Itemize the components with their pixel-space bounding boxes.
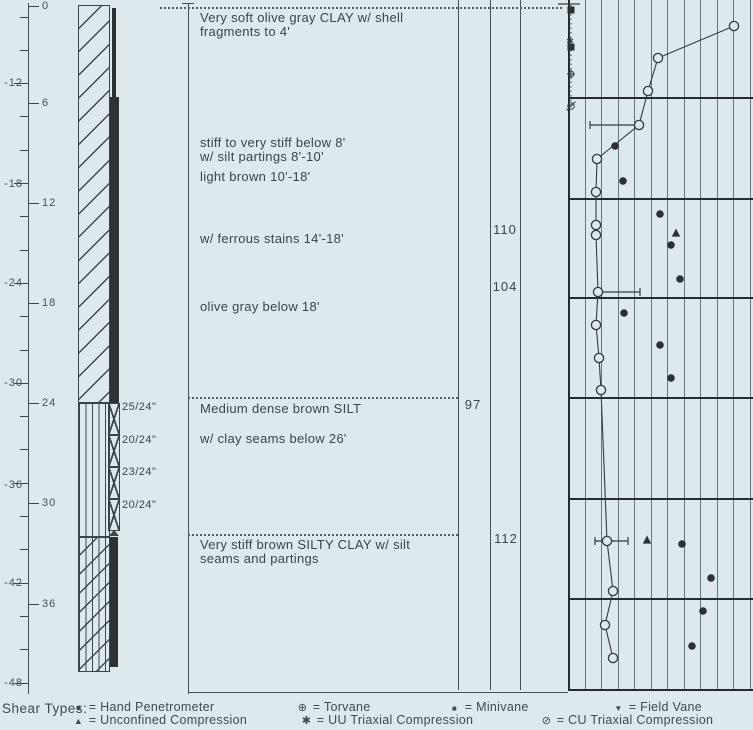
cu-symbol-icon: ⊘ [540,714,553,727]
hand-penetrometer-point [688,642,696,650]
strength-chart-plot: ✱ [0,0,753,730]
legend-item: ⊘ = CU Triaxial Compression [540,713,713,727]
open-circle-point [591,230,600,239]
open-circle-point [591,320,600,329]
open-circle-point [643,86,652,95]
open-circle-point [634,120,643,129]
profile-line [596,26,734,658]
open-circle-point [653,53,662,62]
unconfined-point [672,229,680,237]
legend-item: ▲ = Unconfined Compression [72,713,247,727]
open-circle-point [591,220,600,229]
open-circle-point [592,154,601,163]
filled-square-icon: ■ [448,704,461,713]
hand-penetrometer-point [656,210,664,218]
open-circle-point [729,21,738,30]
up-triangle-icon: ▲ [72,716,85,726]
hand-penetrometer-point [656,341,664,349]
hand-penetrometer-point [676,275,684,283]
legend-item: ▼ = Field Vane [612,700,702,714]
open-circle-point [591,187,600,196]
hand-penetrometer-point [707,574,715,582]
unconfined-point [643,536,651,544]
open-circle-point [596,385,605,394]
star-icon: ✱ [300,714,313,727]
uu-triaxial-point: ✱ [566,36,574,46]
open-circle-point [608,586,617,595]
boring-log-sheet: -12-18-24-30-36-42-48061218243036 25/24"… [0,0,753,730]
open-circle-point [608,653,617,662]
hand-penetrometer-point [699,607,707,615]
field-vane-icon: ▼ [612,704,625,713]
legend-item: ⊕ = Torvane [296,700,371,714]
open-circle-point [600,620,609,629]
open-circle-point [594,353,603,362]
minivane-point [568,7,575,14]
hand-penetrometer-point [667,241,675,249]
legend-item: ✱ = UU Triaxial Compression [300,713,473,727]
hand-penetrometer-point [619,177,627,185]
hand-penetrometer-point [611,142,619,150]
open-circle-point [602,536,611,545]
hand-penetrometer-point [667,374,675,382]
hand-penetrometer-point [678,540,686,548]
hand-penetrometer-point [620,309,628,317]
legend-item: ■ = Minivane [448,700,529,714]
legend-item: ● = Hand Penetrometer [72,700,214,714]
open-circle-point [593,287,602,296]
